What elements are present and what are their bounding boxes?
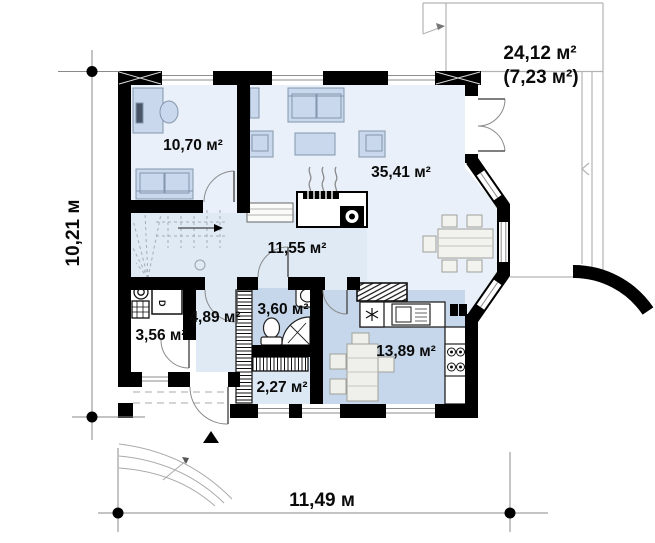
armchair-right <box>359 131 385 157</box>
porch-pillar <box>118 403 133 418</box>
room-label-hall: 11,55 м² <box>268 240 327 257</box>
entrance-door-gap <box>190 372 228 387</box>
shelf <box>250 88 259 118</box>
floor-vestibule <box>196 290 236 372</box>
coffee-table <box>295 133 335 155</box>
room-label-boiler-room: 3,56 м² <box>135 327 186 344</box>
entrance-arrow <box>203 431 219 443</box>
office-sofa <box>136 169 193 199</box>
dimension-width-label: 11,49 м <box>289 490 355 511</box>
wall-pier <box>459 304 467 316</box>
kitchen-chair <box>330 379 346 394</box>
equipment-label: D <box>157 300 167 307</box>
terrace-french-doors <box>478 99 505 151</box>
computer-icon <box>136 103 143 123</box>
toilet <box>264 318 280 338</box>
kitchen-chair <box>330 354 346 369</box>
dimension-height-label: 10,21 м <box>63 200 84 267</box>
room-label-pantry: 2,27 м² <box>256 379 307 396</box>
curved-wall <box>573 271 648 311</box>
hall-closet <box>357 283 407 301</box>
room-label-kitchen: 13,89 м² <box>376 343 436 360</box>
dining-table <box>438 229 493 258</box>
room-label-office: 10,70 м² <box>163 137 223 154</box>
wall-pier <box>450 304 458 316</box>
dining-chair <box>467 260 482 272</box>
entry-porch <box>119 392 232 506</box>
pantry-shelf <box>252 357 308 371</box>
floor-plan-page: D <box>0 0 655 543</box>
curved-steps <box>119 444 232 506</box>
dining-chair <box>467 215 482 227</box>
terrace-area-secondary-label: (7,23 м²) <box>503 67 578 88</box>
floor-plan-drawing: D <box>0 0 655 543</box>
room-label-vestibule: 4,89 м² <box>189 309 240 326</box>
living-sofa <box>288 88 344 122</box>
room-label-living-room: 35,41 м² <box>371 164 431 181</box>
dining-chair <box>442 215 457 227</box>
terrace-area-label: 24,12 м² <box>503 43 576 64</box>
dining-chair <box>423 236 436 252</box>
desk-chair <box>160 101 178 123</box>
room-label-bathroom: 3,60 м² <box>257 301 308 318</box>
kitchen-chair <box>352 333 369 344</box>
terrace-door-gap <box>465 96 478 154</box>
armchair-left <box>247 131 273 157</box>
sideboard <box>247 203 293 222</box>
dining-chair <box>442 260 457 272</box>
equipment-grid <box>132 301 149 318</box>
